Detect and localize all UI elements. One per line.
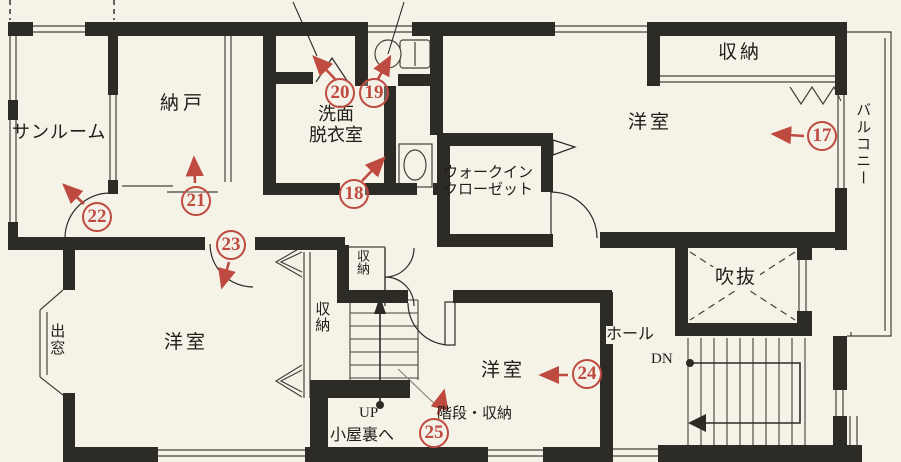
marker-17-arrow	[773, 134, 804, 136]
room-label-closet-strip: 収納	[312, 301, 329, 356]
marker-19: 19	[359, 78, 389, 108]
stairs-storage-label: 階段・収納	[437, 406, 512, 423]
room-label-washroom: 洗面 脱衣室	[290, 104, 382, 145]
marker-17: 17	[807, 121, 837, 151]
marker-23: 23	[216, 230, 246, 260]
zigzag-balcony-door	[790, 87, 841, 104]
marker-18: 18	[339, 179, 369, 209]
room-label-void: 吹抜	[712, 267, 760, 289]
room-label-walkin-closet: ウォークイン クローゼット	[443, 165, 533, 200]
marker-21-arrow	[194, 158, 195, 183]
room-label-storage-room: 納戸	[160, 93, 206, 115]
floor-plan: サンルーム 納戸 洗面 脱衣室 ウォークイン クローゼット 収納 洋室 バルコニ…	[0, 0, 901, 462]
marker-22: 22	[82, 202, 112, 232]
washbasin-fixture	[399, 144, 432, 187]
door-leaf-bedroom-bottom-center	[445, 302, 455, 345]
room-label-bedroom-bottom-left: 洋室	[164, 332, 208, 354]
up-label: UP	[359, 405, 378, 422]
room-label-bay-window: 出窓	[47, 323, 64, 373]
room-label-hall: ホール	[606, 326, 654, 344]
floor-plan-linework	[0, 0, 901, 462]
marker-18-arrow	[362, 158, 384, 181]
walls	[8, 22, 862, 462]
room-label-sunroom: サンルーム	[12, 122, 106, 143]
door-symbol-walkin-flag	[553, 140, 575, 155]
room-label-balcony: バルコニー	[853, 102, 870, 242]
down-direction-arrow	[686, 359, 800, 432]
toilet-fixture	[375, 40, 430, 68]
marker-21: 21	[181, 186, 211, 216]
marker-22-arrow	[64, 185, 84, 204]
marker-24: 24	[572, 359, 602, 389]
room-label-closet-top-right: 収納	[718, 42, 762, 64]
door-arc-walkin-closet	[551, 192, 597, 238]
room-label-closet-small: 収納	[354, 249, 369, 289]
marker-20-arrow	[314, 57, 335, 79]
marker-25: 25	[419, 418, 449, 448]
room-label-bedroom-top-right: 洋室	[628, 112, 672, 134]
to-attic-label: 小屋裏へ	[330, 427, 394, 445]
room-label-bedroom-bottom-center: 洋室	[481, 360, 525, 382]
down-label: DN	[651, 351, 673, 368]
marker-20: 20	[325, 78, 355, 108]
